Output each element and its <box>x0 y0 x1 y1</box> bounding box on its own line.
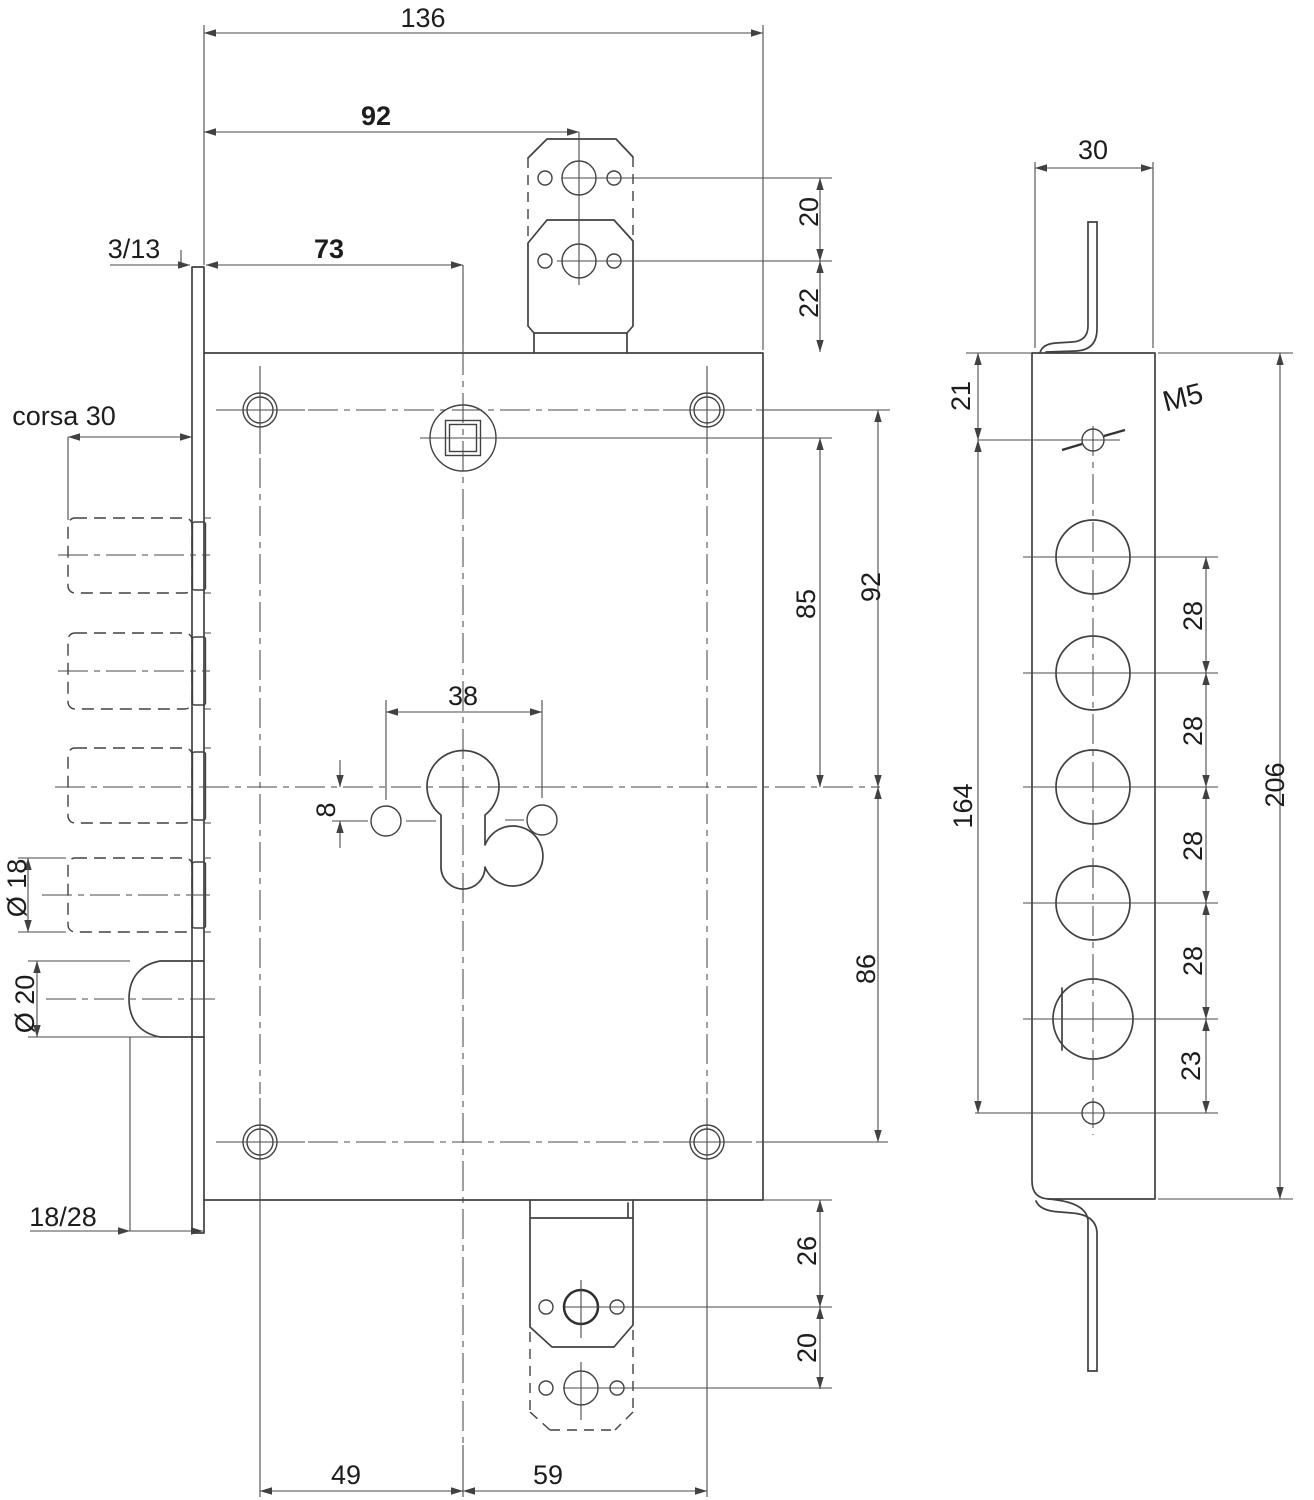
dim-m5-to-bottom-hole: 164 <box>948 783 978 828</box>
fixing-holes <box>216 366 890 1186</box>
side-center-lines <box>975 426 1218 1135</box>
bottom-mounting-tab <box>1036 1199 1097 1371</box>
technical-drawing-page: 136 92 73 3/13 corsa 30 38 8 20 22 85 92… <box>0 0 1314 1500</box>
dim-follower-to-cylinder: 85 <box>791 589 821 619</box>
cylinder-keyhole <box>427 751 543 889</box>
dim-plate-width: 30 <box>1078 135 1108 165</box>
dim-pitch-3: 28 <box>1178 831 1208 861</box>
dim-cylinder-screw-pitch: 38 <box>448 681 478 711</box>
front-view: 136 92 73 3/13 corsa 30 38 8 20 22 85 92… <box>2 3 890 1497</box>
dim-pitch-4: 28 <box>1178 946 1208 976</box>
dim-center-to-hole: 59 <box>533 1460 563 1490</box>
dim-latch-diameter: Ø 20 <box>10 975 40 1034</box>
top-mounting-tab <box>1040 222 1097 353</box>
dim-stroke-corsa: corsa 30 <box>12 401 116 431</box>
dim-striker-backset: 92 <box>361 101 391 131</box>
dim-pitch-2: 28 <box>1178 716 1208 746</box>
lock-body-outline <box>204 353 763 1200</box>
dim-cylinder-backset: 73 <box>314 234 344 264</box>
dim-body-to-striker-hole: 26 <box>792 1236 822 1266</box>
dim-screw-offset: 8 <box>311 802 341 817</box>
dim-faceplate-offset: 3/13 <box>108 234 161 264</box>
bottom-striker-plate <box>530 1200 832 1430</box>
dim-top-to-m5: 21 <box>946 381 976 411</box>
lock-dimension-drawing: 136 92 73 3/13 corsa 30 38 8 20 22 85 92… <box>0 0 1314 1500</box>
dim-striker-bottom-pitch: 20 <box>792 1333 822 1363</box>
dim-total-height: 206 <box>1260 762 1290 807</box>
dim-total-width: 136 <box>400 3 445 33</box>
faceplate-edge <box>192 267 204 1233</box>
dim-striker-top-pitch: 20 <box>794 197 824 227</box>
dim-hole-to-cylinder: 92 <box>856 572 886 602</box>
thread-label-m5: M5 <box>1160 378 1207 419</box>
dim-striker-top-to-body: 22 <box>794 288 824 318</box>
side-view: 30 21 M5 164 206 28 28 28 28 23 <box>946 135 1293 1371</box>
deadbolts-thrown <box>42 518 215 999</box>
dim-hole-to-center: 49 <box>331 1460 361 1490</box>
top-striker-plate <box>528 132 832 353</box>
dim-latch-backset: 18/28 <box>29 1202 97 1232</box>
dim-aux-bolt-diameter: Ø 18 <box>2 859 32 918</box>
dim-last-pitch: 23 <box>1176 1051 1206 1081</box>
dim-cylinder-to-hole: 86 <box>851 954 881 984</box>
follower-square-spindle <box>420 405 832 471</box>
dim-pitch-1: 28 <box>1178 601 1208 631</box>
